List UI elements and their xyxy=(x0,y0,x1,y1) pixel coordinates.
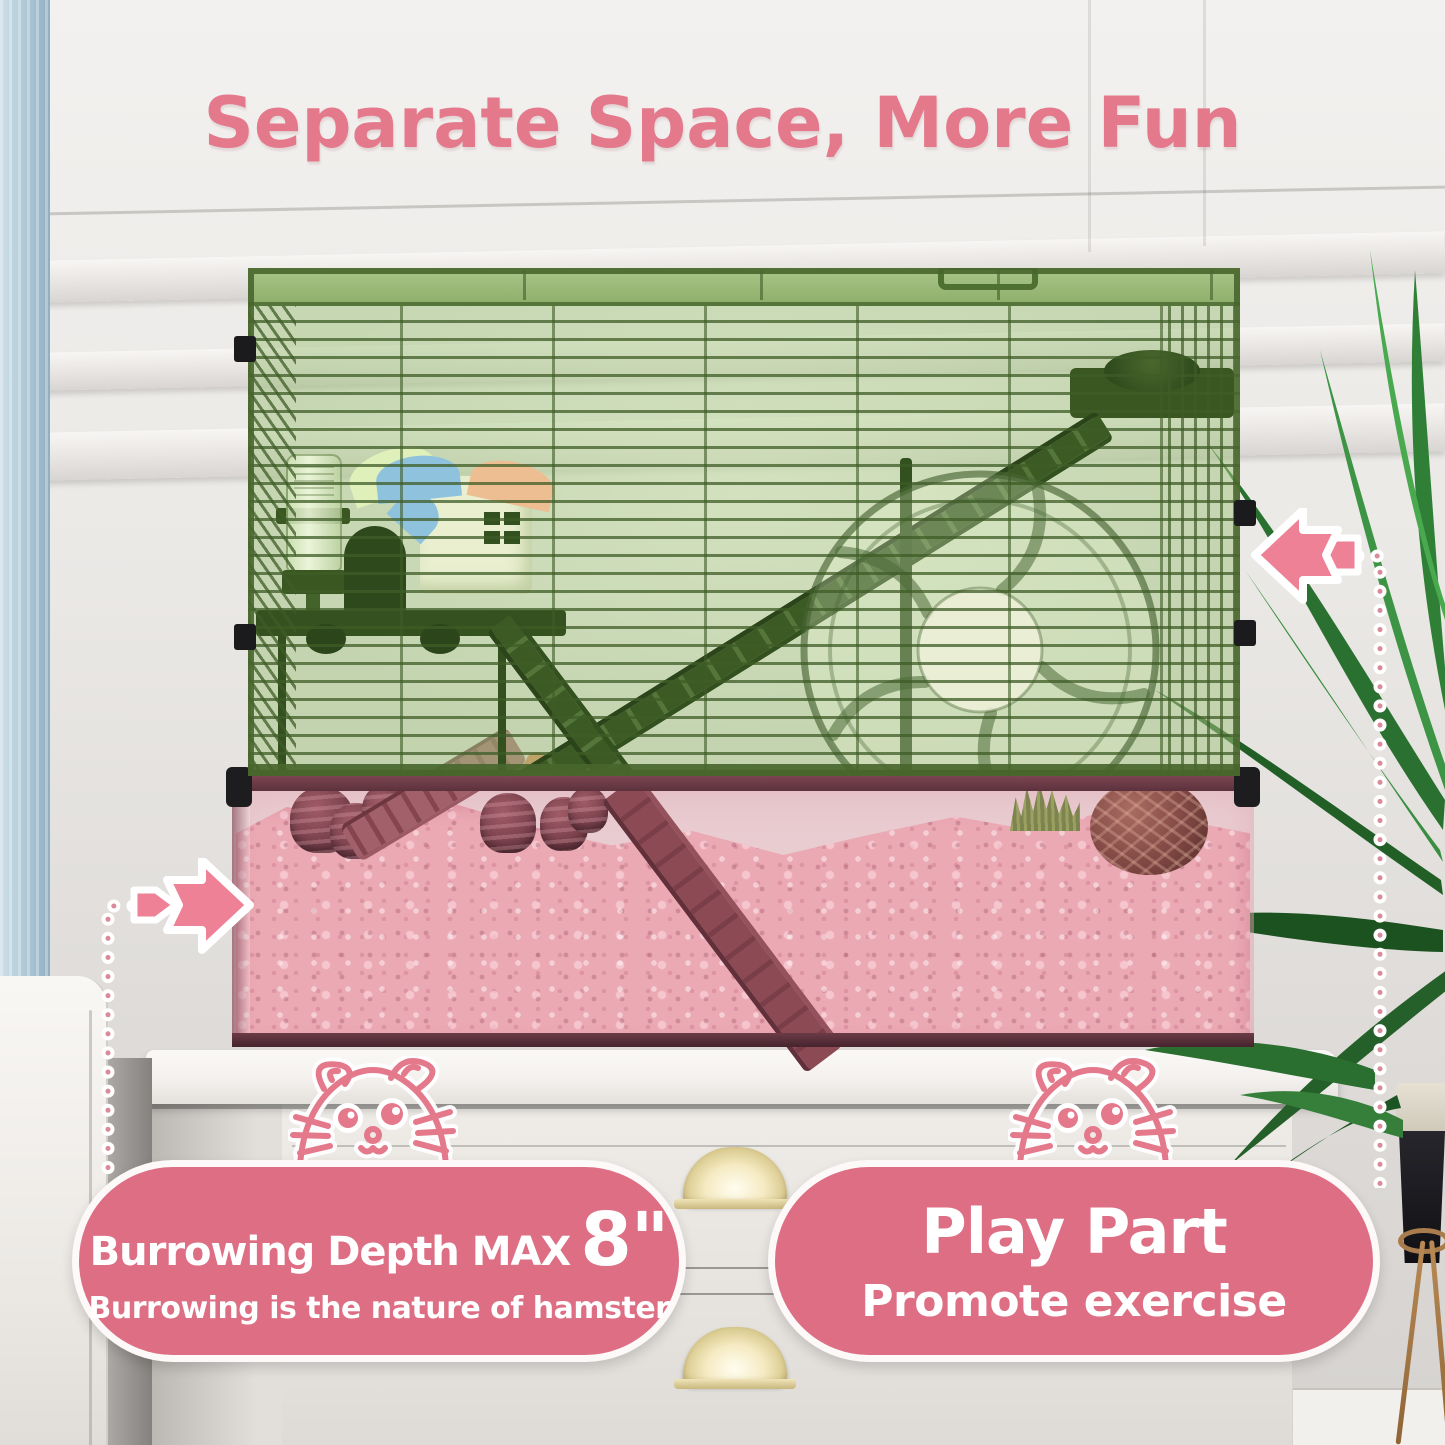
baseboard xyxy=(1293,1388,1445,1445)
lid-seam xyxy=(1210,270,1213,300)
product-marketing-image: Burrowing Depth MAX 8" Burrowing is the … xyxy=(0,0,1445,1445)
rattan-ball xyxy=(1090,779,1208,875)
cage-clip xyxy=(234,624,256,650)
lid-seam xyxy=(523,270,526,300)
page-title: Separate Space, More Fun xyxy=(0,82,1445,164)
feature-badge-play: Play Part Promote exercise xyxy=(768,1160,1380,1362)
pinecone xyxy=(480,793,536,853)
bin-edge xyxy=(232,791,250,1033)
cage-wires-vertical xyxy=(248,302,1240,776)
wire-cage-top xyxy=(248,268,1240,776)
cage-wires-dense xyxy=(1168,302,1234,776)
badge-highlight-value: 8" xyxy=(580,1197,668,1283)
feature-badge-burrowing: Burrowing Depth MAX 8" Burrowing is the … xyxy=(72,1160,686,1362)
badge-subtext: Promote exercise xyxy=(861,1276,1286,1327)
cage-corner-hatch xyxy=(248,302,296,776)
cage-clip xyxy=(1234,620,1256,646)
burrowing-bin xyxy=(232,775,1254,1047)
pinecone xyxy=(568,787,608,833)
bin-bottom-rim xyxy=(232,1033,1254,1047)
badge-subtext: Burrowing is the nature of hamster xyxy=(89,1291,670,1326)
hamster-face-icon xyxy=(1008,1056,1178,1166)
cage-clip xyxy=(1234,500,1256,526)
badge-heading: Burrowing Depth MAX xyxy=(90,1229,571,1275)
lid-handle xyxy=(938,268,1038,290)
hamster-face-icon xyxy=(288,1056,458,1166)
bin-top-rim xyxy=(232,775,1254,791)
cage-lid xyxy=(248,268,1240,306)
cage-clip xyxy=(234,336,256,362)
badge-heading: Play Part xyxy=(921,1195,1226,1268)
cage-bottom-rail xyxy=(248,764,1240,776)
lid-seam xyxy=(760,270,763,300)
